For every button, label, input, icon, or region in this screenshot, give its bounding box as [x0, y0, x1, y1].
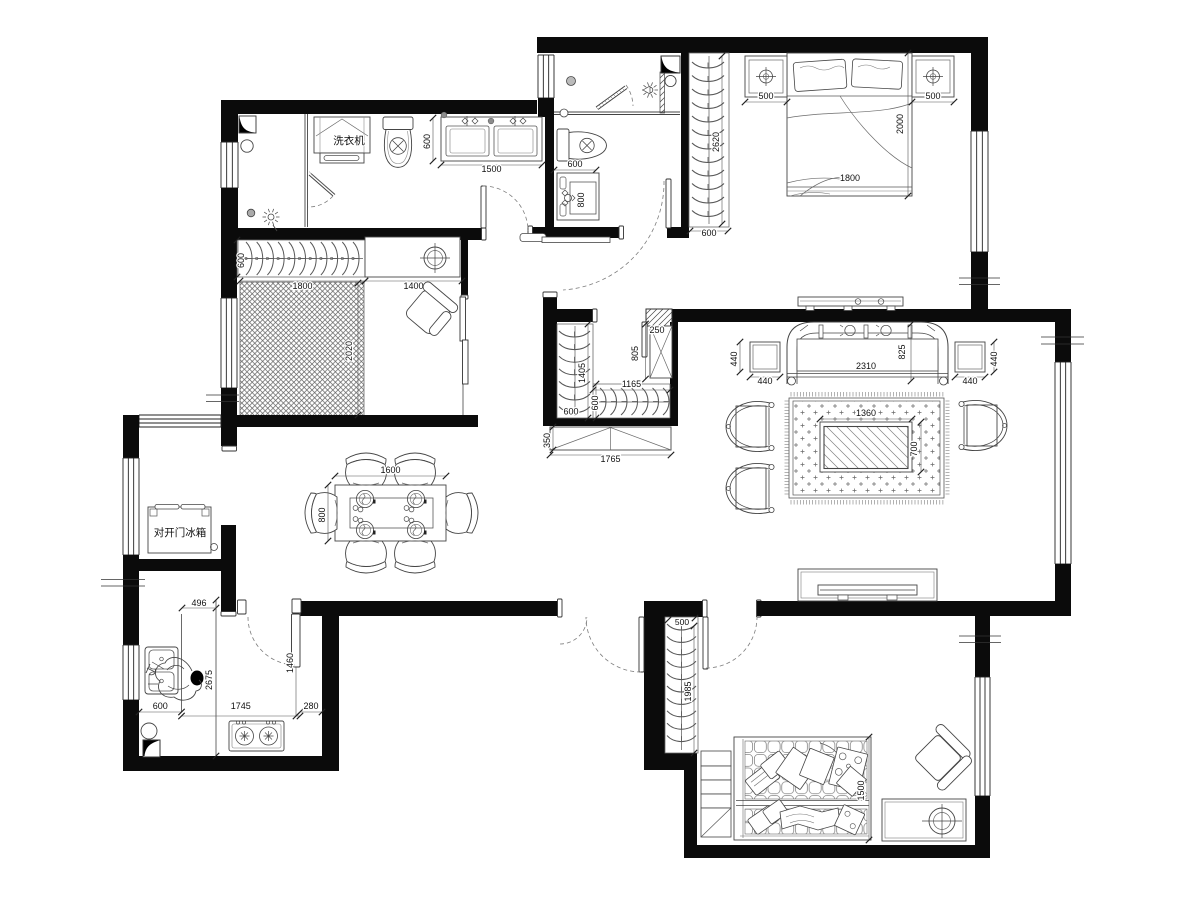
svg-text:对开门冰箱: 对开门冰箱: [154, 526, 207, 539]
svg-text:1745: 1745: [231, 701, 251, 711]
svg-text:2000: 2000: [895, 114, 905, 134]
svg-text:1500: 1500: [481, 164, 501, 174]
svg-text:440: 440: [962, 376, 977, 386]
svg-text:600: 600: [153, 701, 168, 711]
svg-text:1800: 1800: [292, 281, 312, 291]
svg-text:500: 500: [925, 91, 940, 101]
svg-text:440: 440: [989, 351, 999, 366]
svg-text:600: 600: [701, 228, 716, 238]
svg-text:2675: 2675: [204, 670, 214, 690]
svg-text:1985: 1985: [683, 681, 693, 701]
svg-text:1400: 1400: [403, 281, 423, 291]
svg-text:2310: 2310: [856, 361, 876, 371]
svg-text:1165: 1165: [622, 379, 641, 389]
svg-text:1500: 1500: [856, 780, 866, 800]
svg-text:600: 600: [567, 159, 582, 169]
svg-text:600: 600: [590, 395, 600, 410]
svg-text:800: 800: [317, 507, 327, 522]
svg-text:1360: 1360: [856, 408, 876, 418]
svg-text:600: 600: [422, 134, 432, 149]
svg-text:805: 805: [630, 346, 640, 361]
svg-text:500: 500: [758, 91, 773, 101]
svg-text:825: 825: [897, 344, 907, 359]
svg-text:250: 250: [649, 325, 664, 335]
svg-text:600: 600: [563, 407, 578, 417]
svg-text:洗衣机: 洗衣机: [333, 134, 365, 147]
svg-text:800: 800: [576, 192, 586, 207]
svg-text:2020: 2020: [344, 341, 354, 361]
svg-text:700: 700: [909, 441, 919, 456]
svg-text:600: 600: [236, 253, 246, 268]
svg-text:1600: 1600: [380, 465, 400, 475]
svg-text:2620: 2620: [711, 132, 721, 152]
svg-text:1460: 1460: [285, 653, 295, 673]
svg-text:500: 500: [675, 617, 689, 627]
svg-text:1800: 1800: [840, 173, 860, 183]
svg-text:1405: 1405: [577, 363, 587, 383]
svg-text:350: 350: [542, 433, 552, 448]
svg-text:440: 440: [757, 376, 772, 386]
svg-text:496: 496: [191, 598, 206, 608]
svg-text:1765: 1765: [600, 454, 620, 464]
svg-text:280: 280: [303, 701, 318, 711]
svg-text:440: 440: [729, 351, 739, 366]
